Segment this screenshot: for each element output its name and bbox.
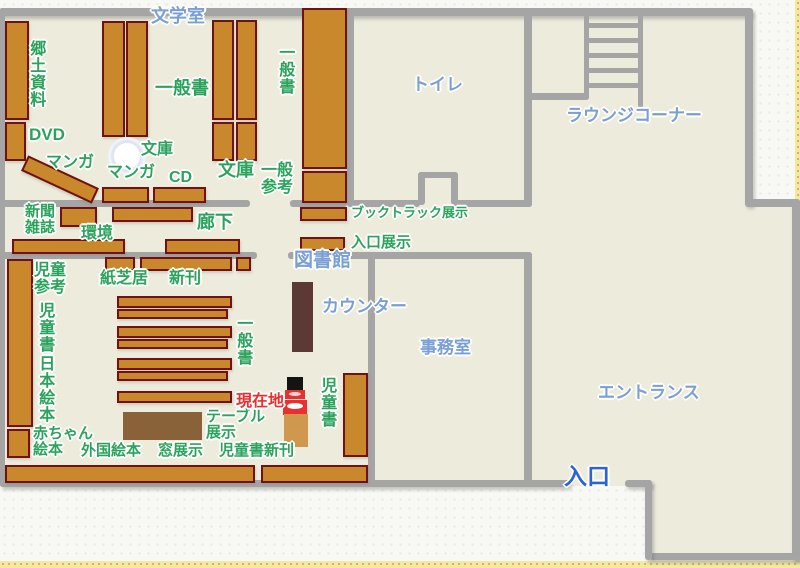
bookshelf [117,371,228,381]
floor-entrance-lower [645,486,795,553]
wall-office-right [524,252,532,487]
bookshelf [102,21,125,137]
section-label-booktruck-display: ブックトラック展示 [351,206,468,220]
bookshelf [212,20,234,120]
bookshelf [302,8,347,169]
room-label-entrance: 入口 [564,464,610,489]
stairs-rail-left [584,8,589,100]
bookshelf-entrance-display [300,237,345,251]
room-label-literature: 文学室 [151,7,205,26]
section-label-new-books: 新刊 [169,270,201,287]
section-label-bunko-a: 文庫 [141,141,173,158]
bookshelf [126,21,148,137]
bookshelf [7,259,33,427]
bookshelf [105,257,135,271]
section-label-environment: 環境 [81,225,113,242]
bookshelf [5,122,26,161]
stairs-step [584,68,643,73]
wall-right-upper [745,8,753,206]
bookshelf [343,373,368,457]
section-label-children-books-a: 児童書 [36,302,53,353]
bookshelf [102,187,149,203]
bookshelf [236,20,257,120]
bookshelf-window [5,465,255,483]
stairs-step [584,23,643,28]
wall-lounge [524,93,588,100]
bookshelf [153,187,206,203]
room-label-toilet: トイレ [412,76,463,94]
section-label-general-books-a: 一般書 [155,79,209,98]
bookshelf [60,207,97,227]
room-label-lounge: ラウンジコーナー [566,107,702,125]
wall-toilet-right [524,8,532,207]
bookshelf [5,21,29,120]
bookshelf [117,358,232,370]
section-label-general-books-b: 一般書 [276,44,293,95]
wall-toilet-door-top [418,172,458,178]
room-label-office: 事務室 [420,339,471,357]
marker-sign-large [283,400,307,415]
bookshelf [165,239,240,254]
bookshelf [236,122,257,161]
section-label-window-display: 窓展示 [158,443,203,459]
bookshelf [112,207,193,222]
wall-toilet-left [347,8,354,207]
section-label-newspaper-magazines: 新聞 雑誌 [25,204,55,236]
bookshelf [117,326,232,338]
bookshelf [117,309,228,319]
paper-edge-bottom [0,561,800,568]
section-label-general-books-c: 一般書 [234,315,251,366]
bookshelf [117,339,228,349]
library-floor-map: 文学室 トイレ ラウンジコーナー 図書館 カウンター 事務室 エントランス 入口… [0,0,800,568]
section-label-manga-a: マンガ [46,154,94,171]
room-label-counter: カウンター [322,298,407,316]
room-label-library: 図書館 [294,251,351,272]
bookshelf [212,122,234,161]
section-label-general-reference: 一般 参考 [261,162,293,197]
bookshelf [117,391,232,403]
section-label-manga-b: マンガ [107,164,155,181]
wall-office-left [368,252,375,487]
marker-top [287,377,303,390]
section-label-dvd: DVD [29,126,65,144]
section-label-entrance-display: 入口展示 [351,235,411,251]
bookshelf [236,257,251,271]
stairs-rail-right [638,8,643,108]
current-location-label: 現在地 [236,393,284,410]
room-label-entrance-hall: エントランス [598,384,700,402]
section-label-kamishibai: 紙芝居 [100,270,148,287]
counter-desk [292,282,313,352]
wall-entrance-left [645,480,652,560]
display-table [123,412,202,440]
stairs-step [584,83,643,88]
bookshelf-window [261,465,368,483]
paper-edge-right [795,0,800,200]
section-label-japanese-picture-books: 日本絵本 [36,355,53,423]
bookshelf-booktruck [300,207,347,221]
section-label-corridor: 廊下 [197,213,233,232]
bookshelf [117,296,232,308]
wall-right-lower [792,199,800,560]
bookshelf [140,257,232,271]
wall-bottom-lower [650,553,800,560]
section-label-foreign-picture-books: 外国絵本 [81,443,141,459]
bookshelf [7,429,30,458]
current-location-marker [283,377,308,447]
section-label-children-reference: 児童 参考 [34,262,66,297]
marker-sign-small [285,390,305,399]
stairs [584,8,643,108]
stairs-step [584,53,643,58]
section-label-local-materials: 郷土資料 [27,40,44,108]
section-label-children-books-b: 児童書 [318,377,335,428]
stairs-step [584,38,643,43]
section-label-table-display: テーブル 展示 [206,409,265,441]
bookshelf [302,171,347,203]
section-label-bunko-b: 文庫 [218,161,254,180]
section-label-cd: CD [169,169,192,186]
section-label-children-new-books: 児童書新刊 [219,443,294,459]
